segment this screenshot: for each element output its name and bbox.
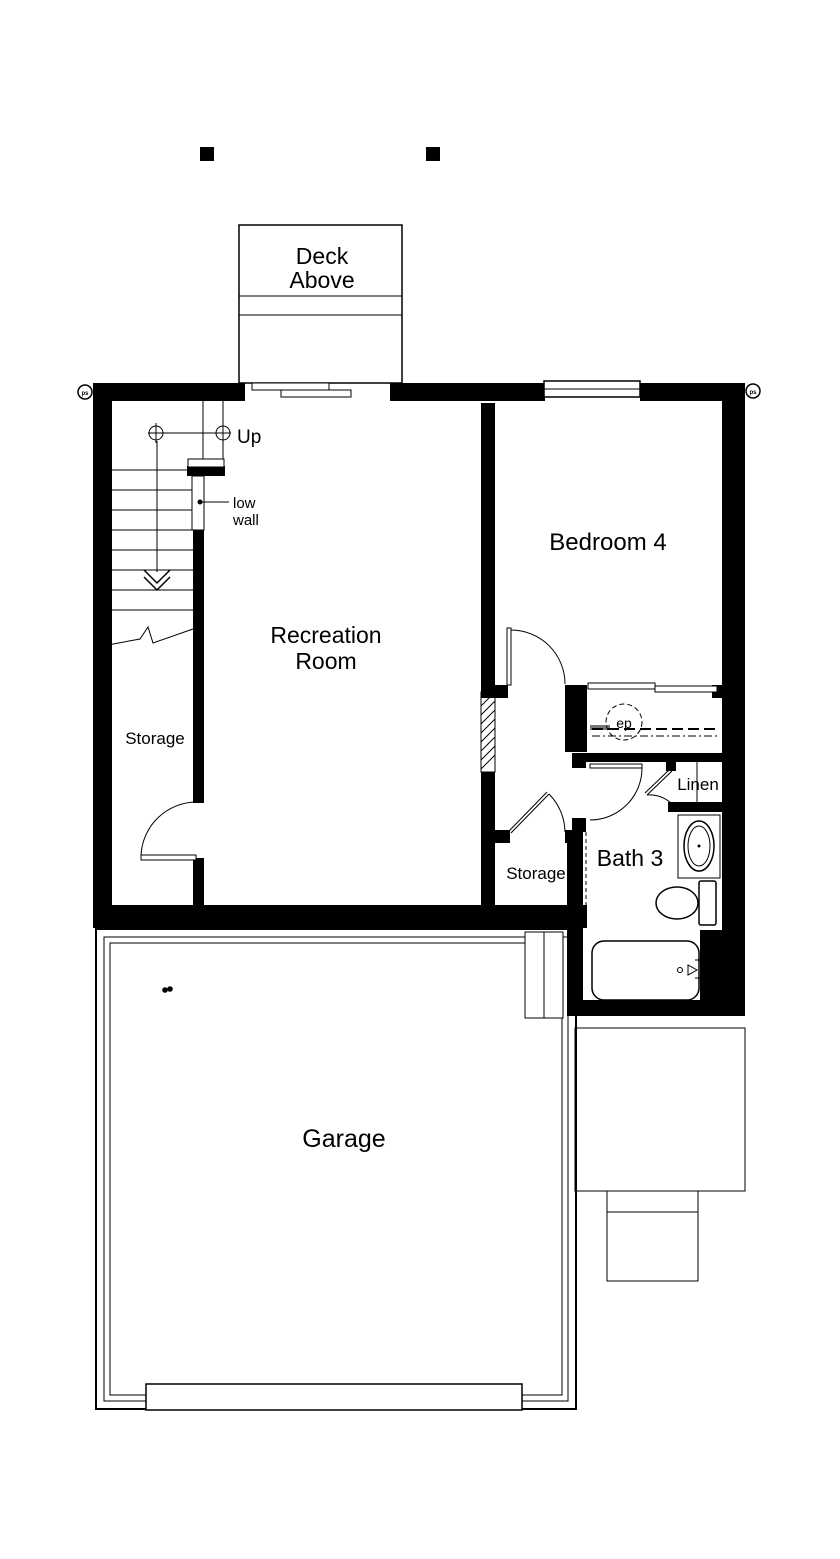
wall-bath-door-stub-bottom	[572, 818, 586, 832]
recreation-room-label-line1: Recreation	[270, 622, 381, 648]
garage-label: Garage	[302, 1125, 385, 1153]
floor-plan-drawing: Deck Above	[0, 0, 840, 1559]
linen-label: Linen	[677, 775, 719, 794]
deck-label-line2: Above	[289, 267, 354, 293]
deck-post-right	[426, 147, 440, 161]
wall-storage2-top-left	[481, 830, 510, 843]
corner-marker-right-label: ps	[749, 390, 757, 396]
recreation-room-label-line2: Room	[295, 648, 356, 674]
bathtub	[592, 941, 703, 1000]
bath3-label: Bath 3	[597, 845, 664, 871]
corner-marker-left-label: ps	[81, 391, 89, 397]
wall-linen-hinge-stub	[666, 762, 676, 771]
bedroom4-label: Bedroom 4	[549, 529, 666, 556]
wall-hall-east-block	[565, 685, 587, 752]
wall-bottom-main	[93, 905, 587, 928]
cased-opening-left	[588, 683, 655, 689]
storage-center-label: Storage	[506, 864, 566, 883]
floor-plan-page: Deck Above	[0, 0, 840, 1559]
low-wall-label-line1: low	[233, 495, 256, 512]
up-label: Up	[237, 427, 261, 448]
wall-bath-bottom	[570, 1000, 745, 1016]
wall-linen-bottom	[668, 802, 722, 812]
wall-stair-storage	[193, 530, 204, 803]
garage-door	[146, 1384, 522, 1410]
stair-rail-cap	[188, 459, 224, 467]
cased-opening-right	[655, 686, 717, 692]
wall-right	[722, 383, 745, 1016]
wall-bath-door-stub-top	[572, 753, 586, 768]
bedroom4-door-leaf	[507, 628, 511, 685]
storage-left-label: Storage	[125, 729, 185, 748]
wall-left	[93, 383, 112, 928]
wall-stair-storage-stub	[193, 858, 204, 905]
ep-label: ep	[616, 715, 632, 731]
wall-ep-bottom	[585, 753, 722, 762]
wall-top-mid	[390, 383, 545, 401]
sliding-door-panel-left	[252, 383, 329, 390]
wall-rec-bedroom-upper	[481, 403, 495, 692]
storage-left-door-leaf	[141, 855, 196, 860]
deck-post-left	[200, 147, 214, 161]
wall-top-left	[93, 383, 245, 401]
bath3-door-leaf	[590, 764, 642, 768]
deck-label-line1: Deck	[296, 243, 349, 269]
wall-top-right	[640, 383, 722, 401]
low-wall-label-line2: wall	[232, 512, 259, 529]
sliding-door-panel-right	[281, 390, 351, 397]
wall-rec-hall-lower	[481, 772, 495, 928]
